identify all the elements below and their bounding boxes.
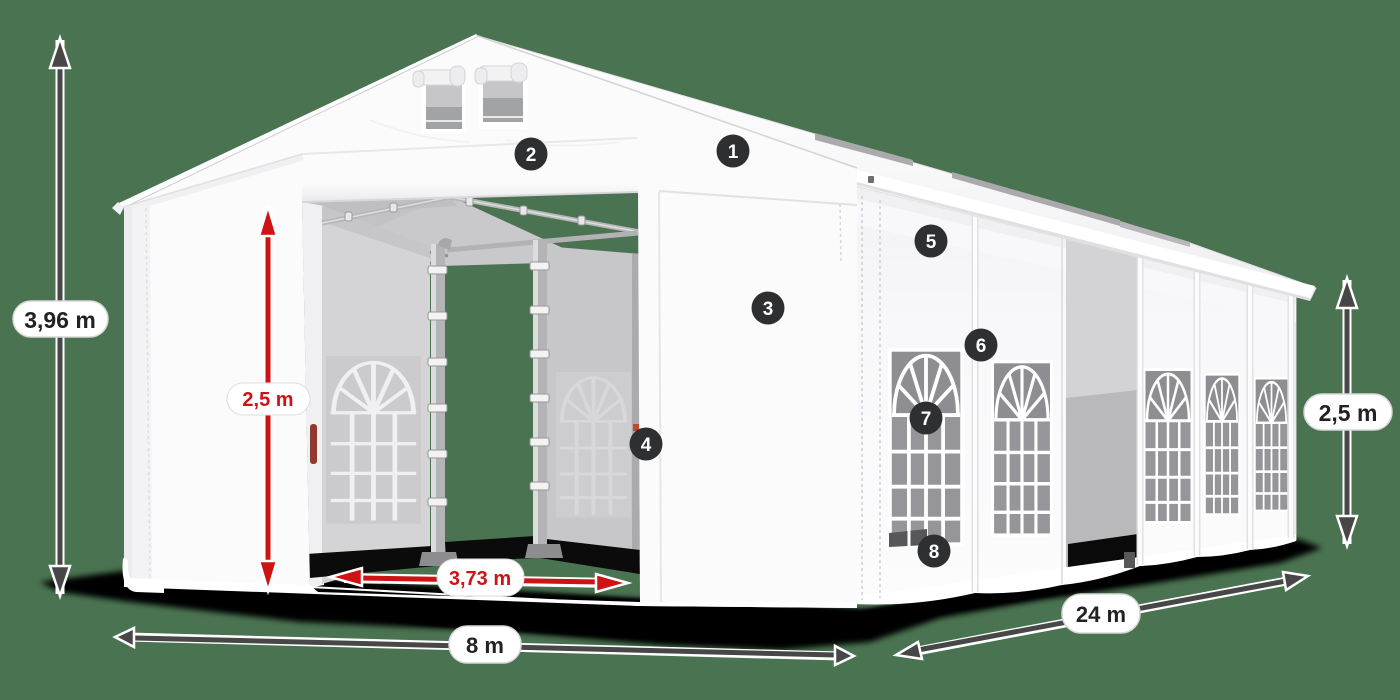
svg-text:3,96 m: 3,96 m	[24, 307, 96, 333]
svg-text:3,73 m: 3,73 m	[449, 568, 511, 590]
svg-text:8: 8	[929, 542, 940, 563]
svg-text:5: 5	[926, 232, 937, 253]
svg-text:1: 1	[728, 142, 739, 163]
svg-text:3: 3	[763, 299, 774, 320]
svg-text:24 m: 24 m	[1076, 602, 1126, 627]
svg-text:7: 7	[921, 409, 932, 430]
svg-text:2,5 m: 2,5 m	[242, 389, 293, 411]
svg-text:6: 6	[976, 336, 987, 357]
svg-text:2,5 m: 2,5 m	[1319, 400, 1378, 426]
svg-text:8 m: 8 m	[466, 633, 504, 658]
svg-text:2: 2	[526, 145, 537, 166]
svg-text:4: 4	[641, 435, 652, 456]
